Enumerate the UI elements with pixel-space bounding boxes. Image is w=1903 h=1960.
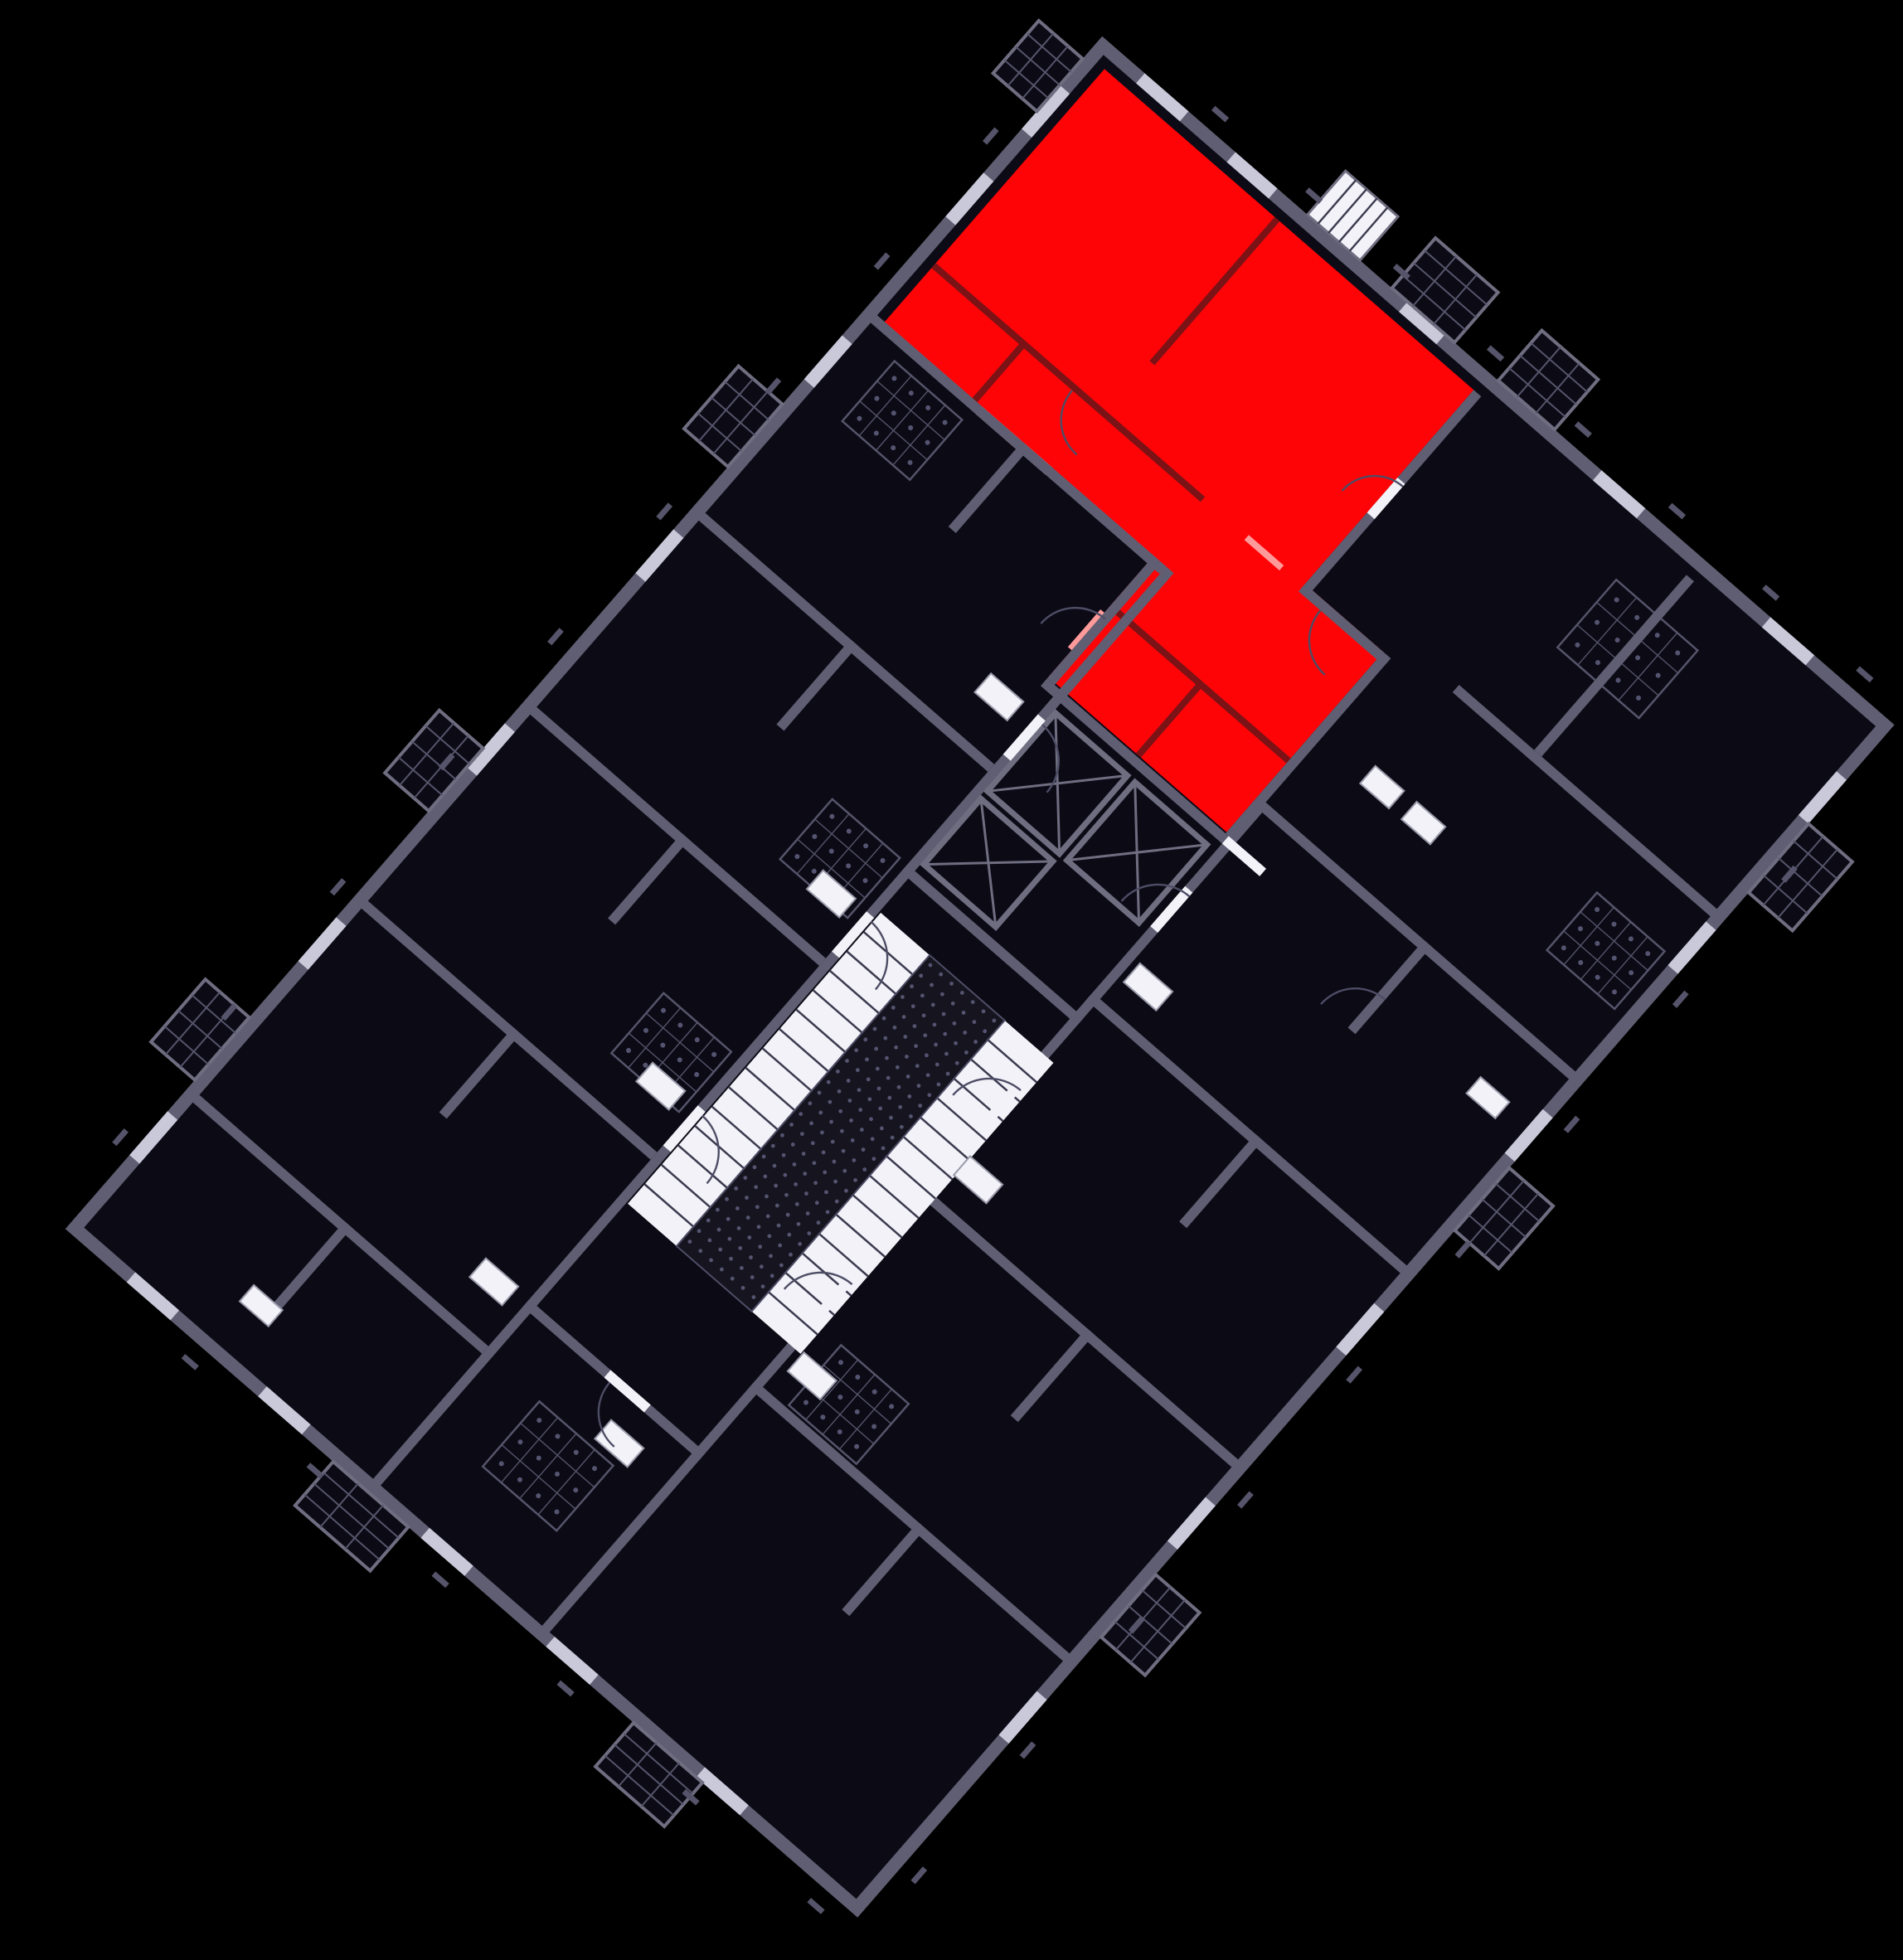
dimension-tick [983, 127, 999, 144]
dimension-tick [874, 252, 891, 269]
dimension-tick [1346, 1366, 1362, 1383]
dimension-tick [1668, 503, 1686, 520]
dimension-tick [807, 1898, 824, 1914]
floor-plan-canvas [0, 0, 1903, 1960]
dimension-tick [182, 1354, 199, 1371]
dimension-tick [307, 1463, 324, 1479]
dimension-tick [910, 1866, 927, 1884]
dimension-tick [1672, 991, 1689, 1008]
dimension-tick [1454, 1241, 1471, 1259]
dimension-tick [1305, 187, 1323, 204]
dimension-tick [1856, 666, 1873, 682]
dimension-tick [1487, 345, 1504, 361]
dimension-tick [1020, 1741, 1036, 1759]
dimension-tick [547, 628, 564, 645]
dimension-tick [1564, 1116, 1580, 1133]
dimension-tick [765, 377, 782, 395]
dimension-tick [112, 1128, 129, 1146]
dimension-tick [557, 1681, 575, 1697]
building [0, 0, 1903, 1960]
dimension-tick [1575, 421, 1592, 438]
dimension-tick [432, 1571, 449, 1588]
dimension-tick [656, 502, 672, 520]
dimension-tick [330, 878, 347, 895]
dimension-tick [1211, 106, 1229, 123]
floor-plan-svg [0, 0, 1903, 1960]
dimension-tick [1237, 1491, 1254, 1508]
dimension-tick [1762, 585, 1779, 601]
